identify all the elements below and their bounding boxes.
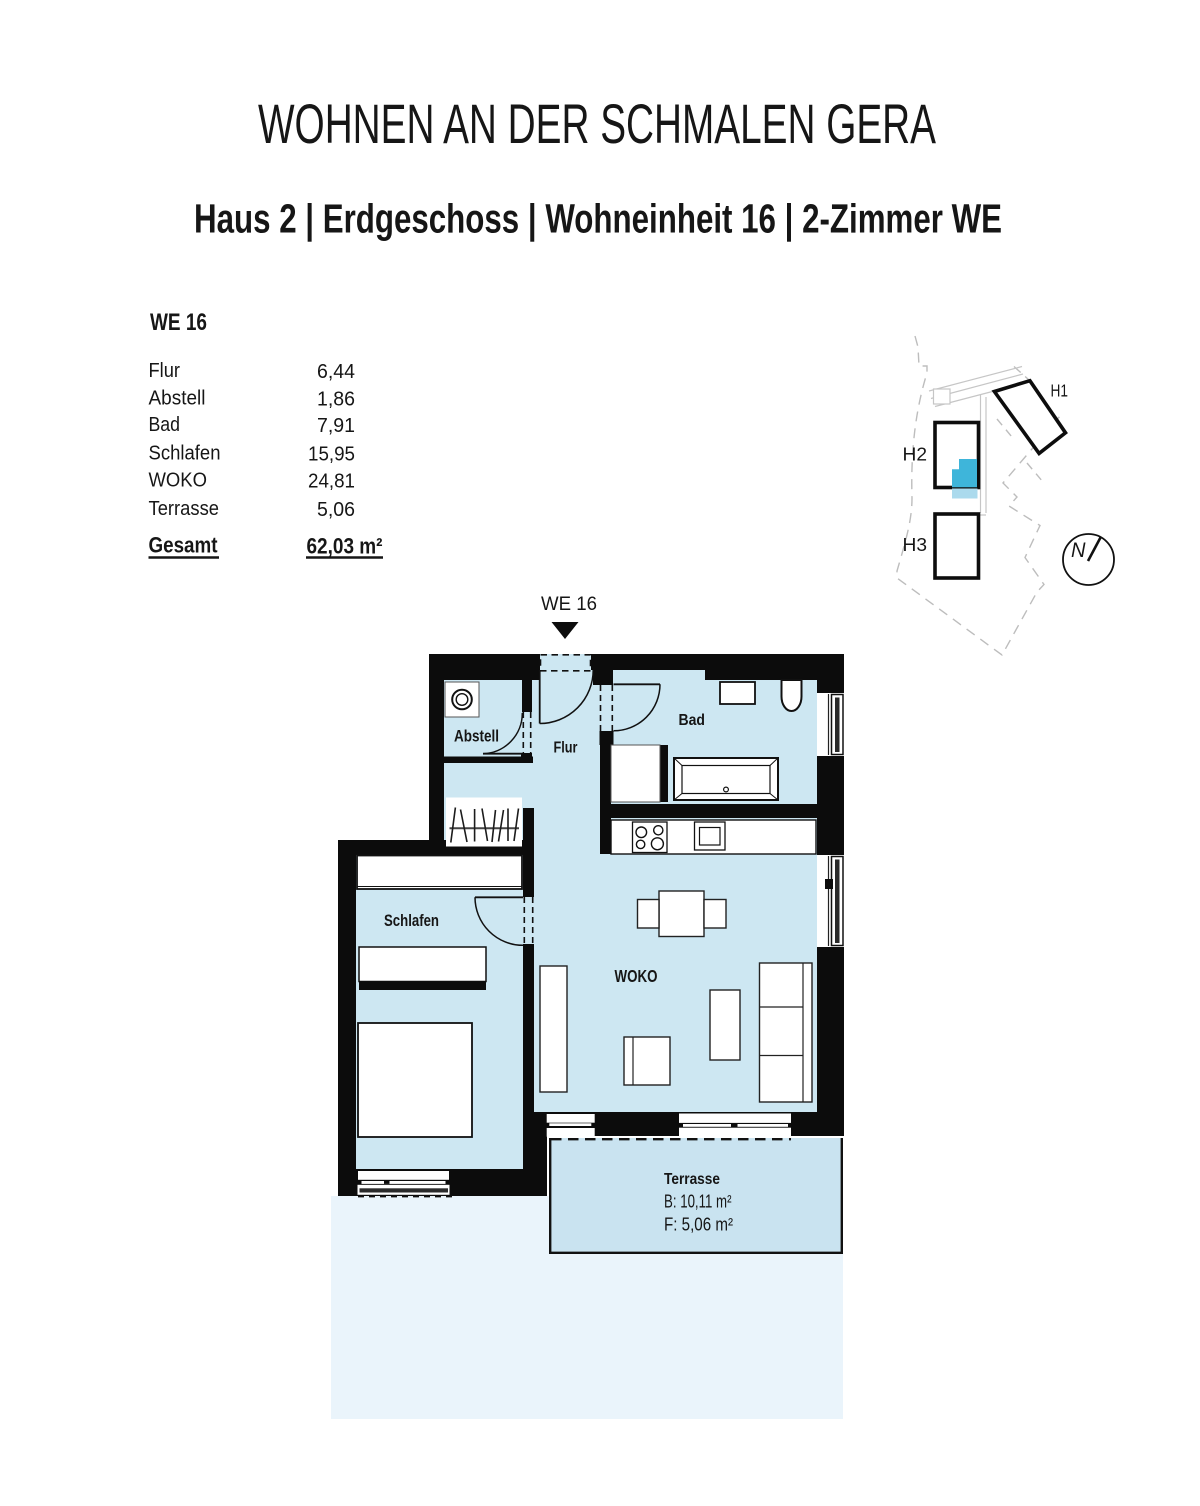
svg-text:WE 16: WE 16 xyxy=(541,594,597,615)
svg-text:F: 5,06 m²: F: 5,06 m² xyxy=(664,1215,733,1235)
svg-text:WE 16: WE 16 xyxy=(150,309,207,336)
svg-text:1,86: 1,86 xyxy=(317,388,355,411)
svg-text:Terrasse: Terrasse xyxy=(149,497,220,520)
svg-text:6,44: 6,44 xyxy=(317,360,355,383)
svg-text:Bad: Bad xyxy=(679,712,706,729)
svg-text:15,95: 15,95 xyxy=(308,443,355,466)
svg-text:5,06: 5,06 xyxy=(317,498,355,521)
svg-text:H3: H3 xyxy=(903,534,928,555)
svg-text:Schlafen: Schlafen xyxy=(384,912,439,930)
svg-text:Abstell: Abstell xyxy=(149,387,206,410)
svg-text:7,91: 7,91 xyxy=(317,414,355,437)
svg-text:Schlafen: Schlafen xyxy=(149,442,221,465)
svg-text:Terrasse: Terrasse xyxy=(664,1171,720,1188)
svg-text:B: 10,11 m²: B: 10,11 m² xyxy=(664,1192,732,1212)
svg-text:Haus 2 | Erdgeschoss | Wohnein: Haus 2 | Erdgeschoss | Wohneinheit 16 | … xyxy=(194,196,1002,242)
svg-text:H2: H2 xyxy=(903,444,928,465)
svg-text:24,81: 24,81 xyxy=(308,470,355,493)
svg-text:62,03 m²: 62,03 m² xyxy=(307,534,383,559)
svg-text:WOKO: WOKO xyxy=(149,469,208,492)
svg-text:WOKO: WOKO xyxy=(615,966,658,986)
svg-text:WOHNEN AN DER SCHMALEN GERA: WOHNEN AN DER SCHMALEN GERA xyxy=(258,92,936,155)
svg-text:Abstell: Abstell xyxy=(454,727,499,746)
svg-text:Flur: Flur xyxy=(149,359,181,382)
svg-text:Flur: Flur xyxy=(554,740,578,757)
svg-text:Gesamt: Gesamt xyxy=(149,533,219,558)
svg-text:Bad: Bad xyxy=(149,413,181,436)
svg-text:N: N xyxy=(1071,539,1086,562)
svg-text:H1: H1 xyxy=(1051,381,1069,401)
